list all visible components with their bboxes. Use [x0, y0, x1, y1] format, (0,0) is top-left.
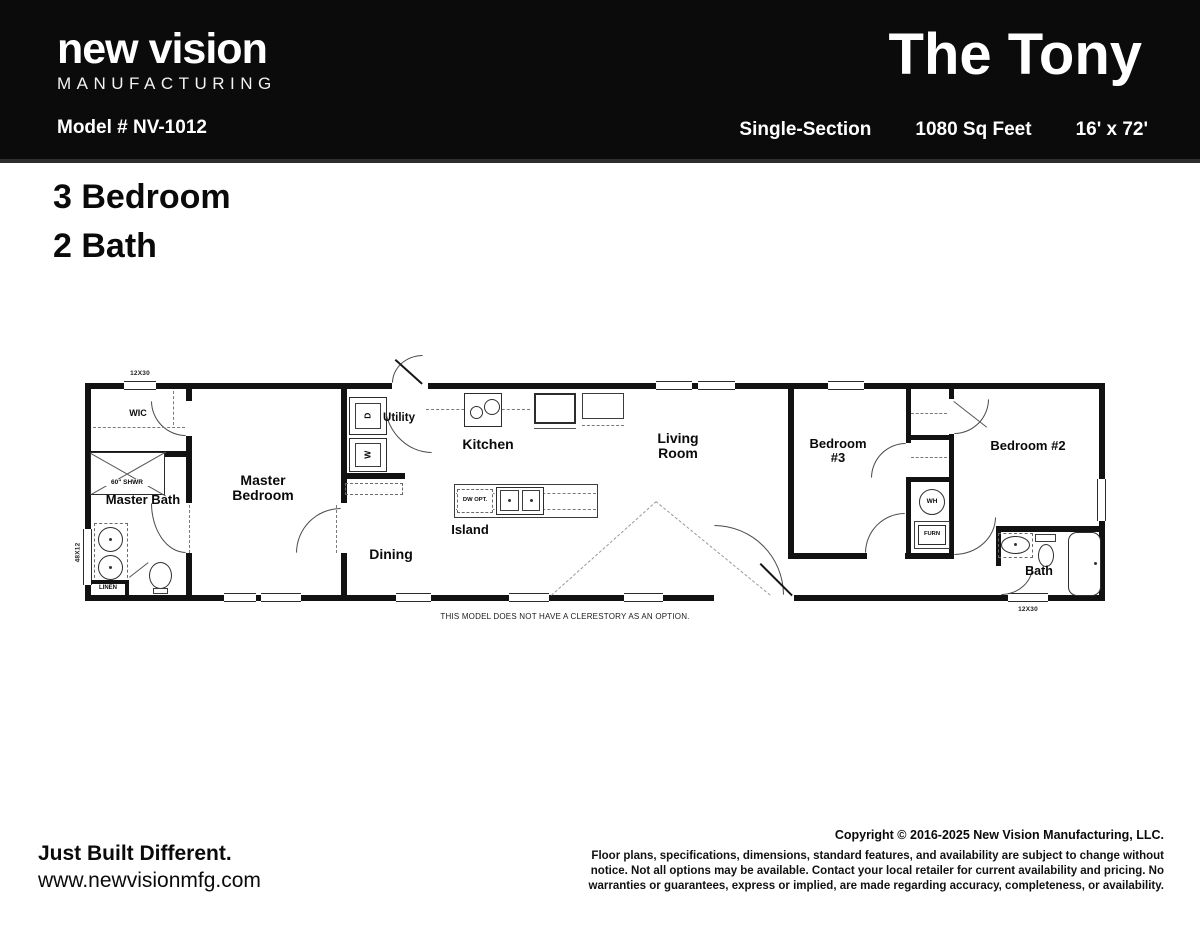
door-arc: [714, 525, 784, 595]
pantry-cabinet: [582, 393, 624, 419]
wall: [125, 580, 129, 595]
disclaimer-text: Floor plans, specifications, dimensions,…: [564, 849, 1164, 895]
open-door-dash: [189, 505, 190, 553]
sink-drain: [1014, 543, 1017, 546]
linen-label: LINEN: [92, 585, 124, 592]
door-opening: [714, 595, 794, 601]
bed-bath-summary: 3 Bedroom 2 Bath: [53, 173, 231, 271]
water-heater-label: WH: [919, 498, 945, 505]
closet-shelf-dash: [911, 413, 947, 414]
refrigerator-door-line: [534, 428, 576, 429]
furnace-label: FURN: [918, 531, 946, 537]
window: [124, 381, 156, 390]
window: [828, 381, 864, 390]
copyright-line: Copyright © 2016-2025 New Vision Manufac…: [564, 828, 1164, 842]
dishwasher-optional-label: DW OPT.: [458, 497, 492, 503]
wall: [186, 436, 192, 503]
door-arc: [296, 508, 341, 553]
floor-plan: 12X30 48X12 12X30 WIC 60" SHWR: [85, 383, 1105, 601]
tagline: Just Built Different.: [38, 842, 232, 866]
wall: [905, 553, 954, 559]
open-door-dash: [336, 505, 337, 553]
company-logo: new vision MANUFACTURING: [57, 28, 277, 94]
room-label-living-room: Living Room: [642, 431, 714, 462]
spec-sheet: new vision MANUFACTURING Model # NV-1012…: [0, 0, 1200, 927]
washer-label: W: [363, 442, 372, 468]
door-arc: [865, 513, 905, 553]
bath-count: 2 Bath: [53, 222, 231, 271]
window: [1097, 479, 1106, 521]
window: [698, 381, 735, 390]
wall: [91, 580, 129, 584]
window-dimension-label: 12X30: [1003, 606, 1053, 613]
window: [224, 593, 256, 602]
toilet-tank: [1035, 534, 1056, 542]
refrigerator: [534, 393, 576, 424]
wall: [788, 389, 794, 553]
shower-label: 60" SHWR: [95, 479, 159, 486]
wall: [341, 473, 405, 479]
room-label-island: Island: [442, 523, 498, 537]
room-label-master-bath: Master Bath: [103, 493, 183, 507]
window-dimension-label: 48X12: [75, 523, 82, 583]
window: [509, 593, 549, 602]
plan-name: The Tony: [889, 26, 1142, 84]
burner: [484, 399, 500, 415]
burner: [470, 406, 483, 419]
wall: [788, 553, 867, 559]
window: [396, 593, 431, 602]
header-bar: new vision MANUFACTURING Model # NV-1012…: [0, 0, 1200, 163]
window: [1008, 593, 1048, 602]
bedroom-count: 3 Bedroom: [53, 173, 231, 222]
wall: [906, 477, 954, 482]
door-arc: [151, 503, 186, 553]
model-number: Model # NV-1012: [57, 117, 207, 139]
wall: [341, 553, 347, 595]
window: [656, 381, 692, 390]
window: [261, 593, 301, 602]
spec-dimensions: 16' x 72': [1076, 119, 1148, 141]
sink-drain: [109, 566, 112, 569]
door-arc: [384, 401, 432, 453]
logo-wordmark: new vision: [57, 28, 277, 71]
spec-square-feet: 1080 Sq Feet: [915, 119, 1031, 141]
door-opening: [392, 383, 428, 389]
closet-shelf-dash: [93, 427, 185, 428]
sink-drain: [109, 538, 112, 541]
closet-shelf-dash: [911, 457, 947, 458]
wall: [906, 478, 911, 553]
sink-drain: [530, 499, 533, 502]
door-leaf: [129, 562, 149, 578]
logo-subtitle: MANUFACTURING: [57, 74, 277, 94]
room-label-utility: Utility: [371, 412, 427, 425]
door-arc: [954, 517, 996, 555]
plan-specs: Single-Section 1080 Sq Feet 16' x 72': [739, 119, 1148, 141]
window: [624, 593, 663, 602]
toilet: [149, 562, 172, 589]
room-label-kitchen: Kitchen: [443, 437, 533, 452]
room-label-dining: Dining: [351, 547, 431, 562]
window-dimension-label: 12X30: [115, 370, 165, 377]
utility-counter: [345, 483, 403, 495]
room-label-bedroom3: Bedroom #3: [802, 437, 874, 466]
door-arc: [871, 443, 906, 478]
sink-drain: [508, 499, 511, 502]
spec-section-type: Single-Section: [739, 119, 871, 141]
closet-shelf-dash: [173, 391, 174, 425]
wall: [186, 553, 192, 595]
wall: [949, 389, 954, 399]
room-label-bedroom2: Bedroom #2: [986, 439, 1070, 453]
cabinet-dash: [582, 425, 624, 426]
wall: [186, 389, 192, 401]
bathtub-drain: [1094, 562, 1097, 565]
toilet-tank: [153, 588, 168, 594]
window: [83, 529, 92, 585]
clerestory-note: THIS MODEL DOES NOT HAVE A CLERESTORY AS…: [410, 612, 720, 621]
website-url: www.newvisionmfg.com: [38, 869, 261, 893]
wall: [906, 435, 954, 440]
room-label-wic: WIC: [117, 409, 159, 419]
room-label-master-bedroom: Master Bedroom: [221, 473, 305, 504]
room-label-bath: Bath: [1015, 565, 1063, 579]
legal-block: Copyright © 2016-2025 New Vision Manufac…: [564, 828, 1164, 895]
